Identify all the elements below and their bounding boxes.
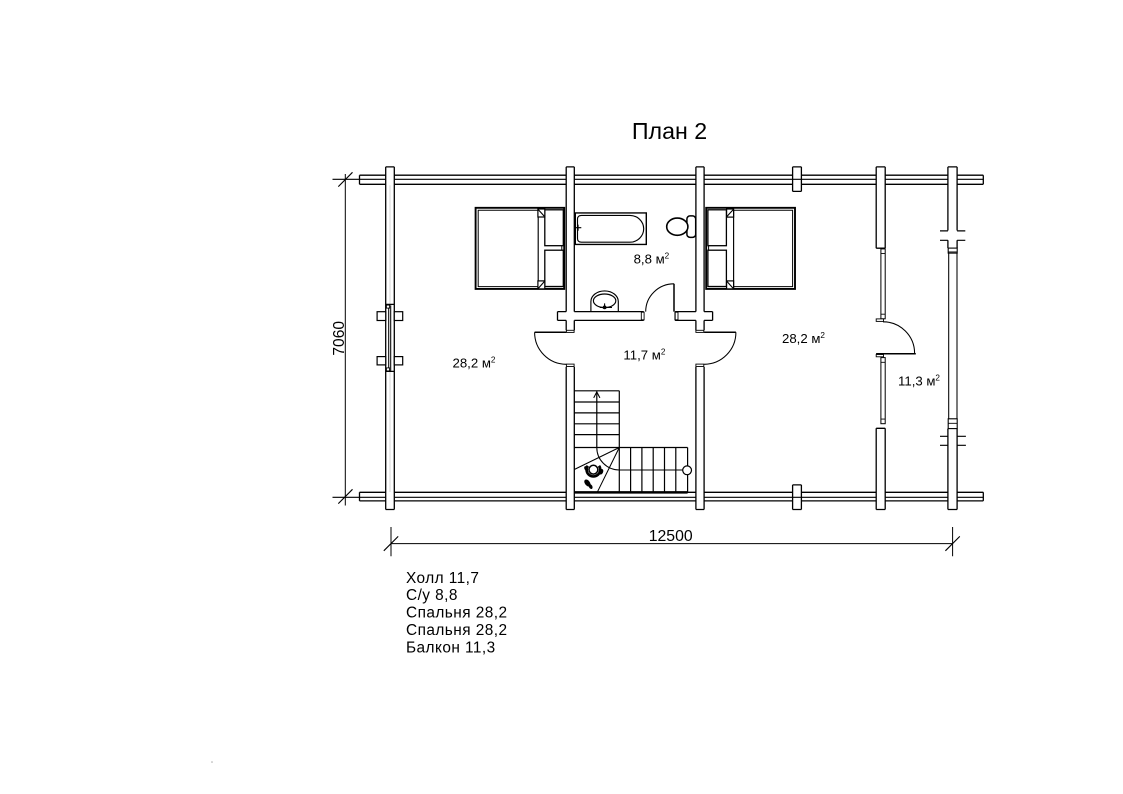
- svg-text:Спальня 28,2: Спальня 28,2: [406, 622, 507, 639]
- svg-text:28,2 м2: 28,2 м2: [453, 355, 496, 370]
- svg-text:План 2: План 2: [632, 118, 707, 144]
- svg-text:28,2 м2: 28,2 м2: [782, 331, 825, 346]
- svg-text:12500: 12500: [649, 528, 693, 545]
- svg-text:С/у 8,8: С/у 8,8: [406, 587, 458, 604]
- svg-text:Спальня 28,2: Спальня 28,2: [406, 605, 507, 622]
- svg-text:Балкон 11,3: Балкон 11,3: [406, 640, 496, 657]
- svg-text:11,7 м2: 11,7 м2: [623, 348, 665, 363]
- svg-text:7060: 7060: [331, 321, 348, 356]
- svg-text:Холл 11,7: Холл 11,7: [406, 570, 479, 587]
- svg-text:8,8 м2: 8,8 м2: [634, 252, 670, 267]
- svg-text:11,3 м2: 11,3 м2: [898, 373, 940, 388]
